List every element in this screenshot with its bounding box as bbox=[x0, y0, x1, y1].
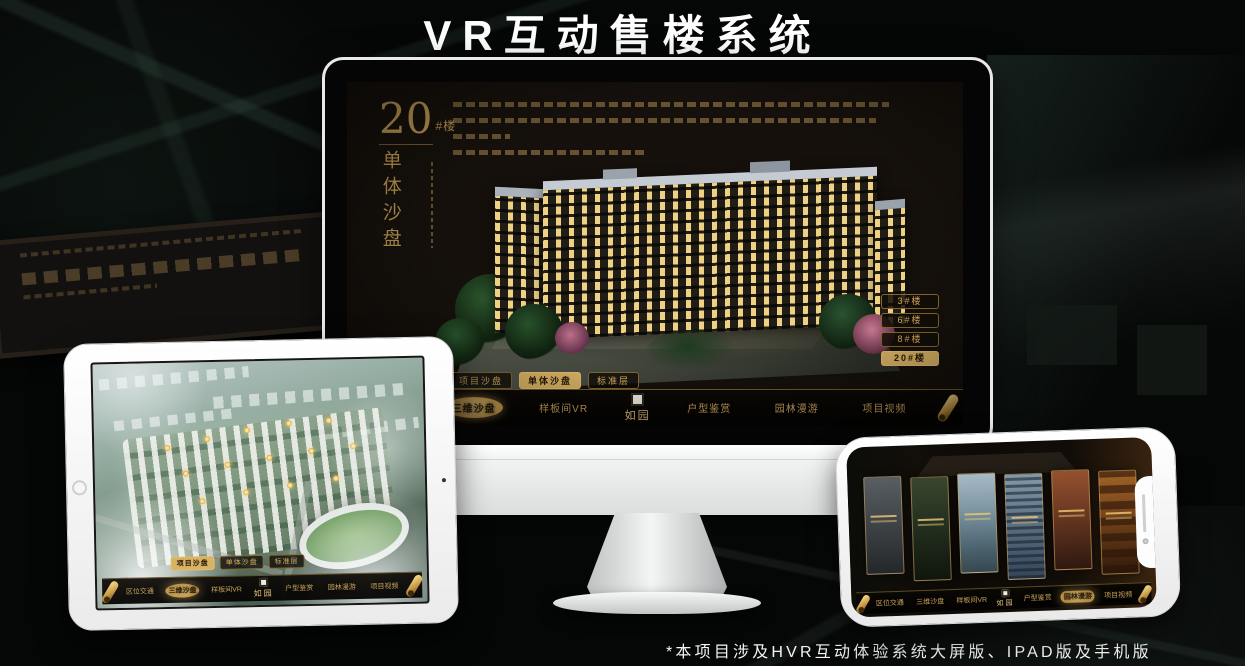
nav-item-floorplans[interactable]: 户型鉴赏 bbox=[1020, 591, 1054, 604]
brand-logo-text: 如园 bbox=[996, 598, 1014, 609]
nav-item-showflat-vr[interactable]: 样板间VR bbox=[953, 593, 990, 606]
scroll-icon[interactable] bbox=[936, 392, 960, 423]
tablet-sub-tabs: 项目沙盘 单体沙盘 标准层 bbox=[171, 554, 305, 571]
background-photo-right bbox=[987, 55, 1245, 455]
nav-item-showflat-vr[interactable]: 样板间VR bbox=[208, 582, 245, 597]
brand-logo: 如园 bbox=[996, 589, 1015, 609]
floor-button-group: 3#楼 6#楼 8#楼 20#楼 bbox=[881, 294, 939, 366]
blossom-tree bbox=[555, 322, 589, 354]
building-marker[interactable] bbox=[183, 471, 189, 477]
gallery-panel[interactable] bbox=[1051, 469, 1092, 570]
aerial-building-row bbox=[213, 383, 403, 409]
nav-item-showflat-vr[interactable]: 样板间VR bbox=[532, 397, 595, 418]
panel-caption bbox=[918, 518, 943, 521]
building-marker[interactable] bbox=[164, 445, 170, 451]
tab-project-sandtable[interactable]: 项目沙盘 bbox=[450, 372, 512, 389]
tab-project-sandtable[interactable]: 项目沙盘 bbox=[171, 556, 215, 571]
scroll-icon[interactable] bbox=[405, 573, 424, 598]
building-marker[interactable] bbox=[225, 462, 231, 468]
nav-item-garden-roam[interactable]: 园林漫游 bbox=[1061, 590, 1095, 603]
building-marker[interactable] bbox=[199, 498, 205, 504]
tree-decoration bbox=[505, 304, 563, 360]
background-award-plaque bbox=[0, 211, 341, 359]
brand-logo-text: 如园 bbox=[254, 588, 274, 599]
gallery-panels bbox=[863, 467, 1140, 584]
nav-item-project-video[interactable]: 项目视频 bbox=[855, 397, 913, 418]
scroll-icon[interactable] bbox=[855, 593, 871, 614]
building-marker[interactable] bbox=[287, 482, 293, 488]
aerial-building-row bbox=[99, 366, 249, 391]
building-marker[interactable] bbox=[326, 418, 332, 424]
floor-button-8[interactable]: 8#楼 bbox=[881, 332, 939, 347]
scroll-icon[interactable] bbox=[101, 579, 120, 604]
monitor-stand-base bbox=[553, 592, 761, 614]
background-building-silhouette bbox=[1027, 305, 1117, 365]
tab-single-sandtable[interactable]: 单体沙盘 bbox=[220, 555, 264, 570]
gallery-panel[interactable] bbox=[910, 476, 952, 581]
phone-notch bbox=[1134, 476, 1155, 569]
floor-button-20[interactable]: 20#楼 bbox=[881, 351, 939, 366]
gallery-panel[interactable] bbox=[957, 472, 998, 573]
phone-device: 区位交通 三维沙盘 样板间VR 如园 户型鉴赏 园林漫游 项目视频 bbox=[835, 426, 1181, 628]
nav-item-floorplans[interactable]: 户型鉴赏 bbox=[680, 397, 738, 418]
nav-item-project-video[interactable]: 项目视频 bbox=[1101, 588, 1135, 601]
nav-item-location[interactable]: 区位交通 bbox=[123, 584, 157, 599]
sandtable-sub-tabs: 项目沙盘 单体沙盘 标准层 bbox=[450, 372, 639, 389]
seal-icon bbox=[631, 393, 644, 406]
monitor-stand-neck bbox=[587, 513, 727, 601]
building-marker[interactable] bbox=[204, 436, 210, 442]
nav-item-garden-roam[interactable]: 园林漫游 bbox=[768, 397, 826, 418]
panel-caption bbox=[871, 515, 896, 518]
floor-button-6[interactable]: 6#楼 bbox=[881, 313, 939, 328]
building-marker[interactable] bbox=[243, 489, 249, 495]
brand-logo: 如园 bbox=[625, 393, 651, 423]
building-marker[interactable] bbox=[333, 475, 339, 481]
tablet-screen: 项目沙盘 单体沙盘 标准层 区位交通 三维沙盘 样板间VR 如园 户型鉴赏 园林… bbox=[90, 356, 429, 611]
building-marker[interactable] bbox=[350, 443, 356, 449]
gallery-panel[interactable] bbox=[1004, 473, 1046, 580]
plaque-text-line bbox=[23, 284, 157, 300]
nav-item-3d-sandtable[interactable]: 三维沙盘 bbox=[913, 595, 947, 608]
plaque-text-line bbox=[21, 249, 304, 286]
panel-caption bbox=[1106, 511, 1131, 514]
phone-screen: 区位交通 三维沙盘 样板间VR 如园 户型鉴赏 园林漫游 项目视频 bbox=[846, 437, 1157, 618]
page-title: VR互动售楼系统 bbox=[0, 2, 1245, 63]
building-marker[interactable] bbox=[286, 420, 292, 426]
panel-caption bbox=[965, 513, 990, 516]
speaker-icon bbox=[1142, 494, 1146, 532]
building-marker[interactable] bbox=[266, 455, 272, 461]
brand-logo: 如园 bbox=[253, 578, 273, 599]
tablet-navigation-bar: 区位交通 三维沙盘 样板间VR 如园 户型鉴赏 园林漫游 项目视频 bbox=[102, 572, 422, 605]
nav-item-floorplans[interactable]: 户型鉴赏 bbox=[282, 580, 316, 595]
panel-caption bbox=[1059, 510, 1084, 513]
gallery-panel[interactable] bbox=[863, 476, 904, 575]
camera-icon bbox=[442, 478, 446, 482]
seal-icon bbox=[259, 578, 268, 587]
nav-item-3d-sandtable[interactable]: 三维沙盘 bbox=[165, 583, 199, 598]
tablet-device: 项目沙盘 单体沙盘 标准层 区位交通 三维沙盘 样板间VR 如园 户型鉴赏 园林… bbox=[63, 336, 459, 631]
tab-standard-floor[interactable]: 标准层 bbox=[268, 554, 304, 569]
panel-caption bbox=[1012, 516, 1037, 519]
building-marker[interactable] bbox=[244, 427, 250, 433]
tab-single-sandtable[interactable]: 单体沙盘 bbox=[519, 372, 581, 389]
nav-item-location[interactable]: 区位交通 bbox=[873, 596, 907, 609]
background-building-silhouette bbox=[1137, 325, 1207, 395]
brand-logo-text: 如园 bbox=[625, 407, 651, 423]
plaque-text-line bbox=[20, 229, 302, 258]
tab-standard-floor[interactable]: 标准层 bbox=[588, 372, 639, 389]
nav-item-garden-roam[interactable]: 园林漫游 bbox=[325, 579, 359, 594]
camera-icon bbox=[1142, 538, 1148, 544]
scroll-icon[interactable] bbox=[1137, 583, 1153, 604]
seal-icon bbox=[1001, 589, 1009, 597]
nav-item-project-video[interactable]: 项目视频 bbox=[367, 579, 401, 594]
floor-button-3[interactable]: 3#楼 bbox=[881, 294, 939, 309]
tree-shadow bbox=[647, 330, 737, 370]
gallery-panel[interactable] bbox=[1098, 469, 1140, 574]
building-marker[interactable] bbox=[308, 448, 314, 454]
footnote-text: *本项目涉及HVR互动体验系统大屏版、IPAD版及手机版 bbox=[666, 638, 1236, 662]
